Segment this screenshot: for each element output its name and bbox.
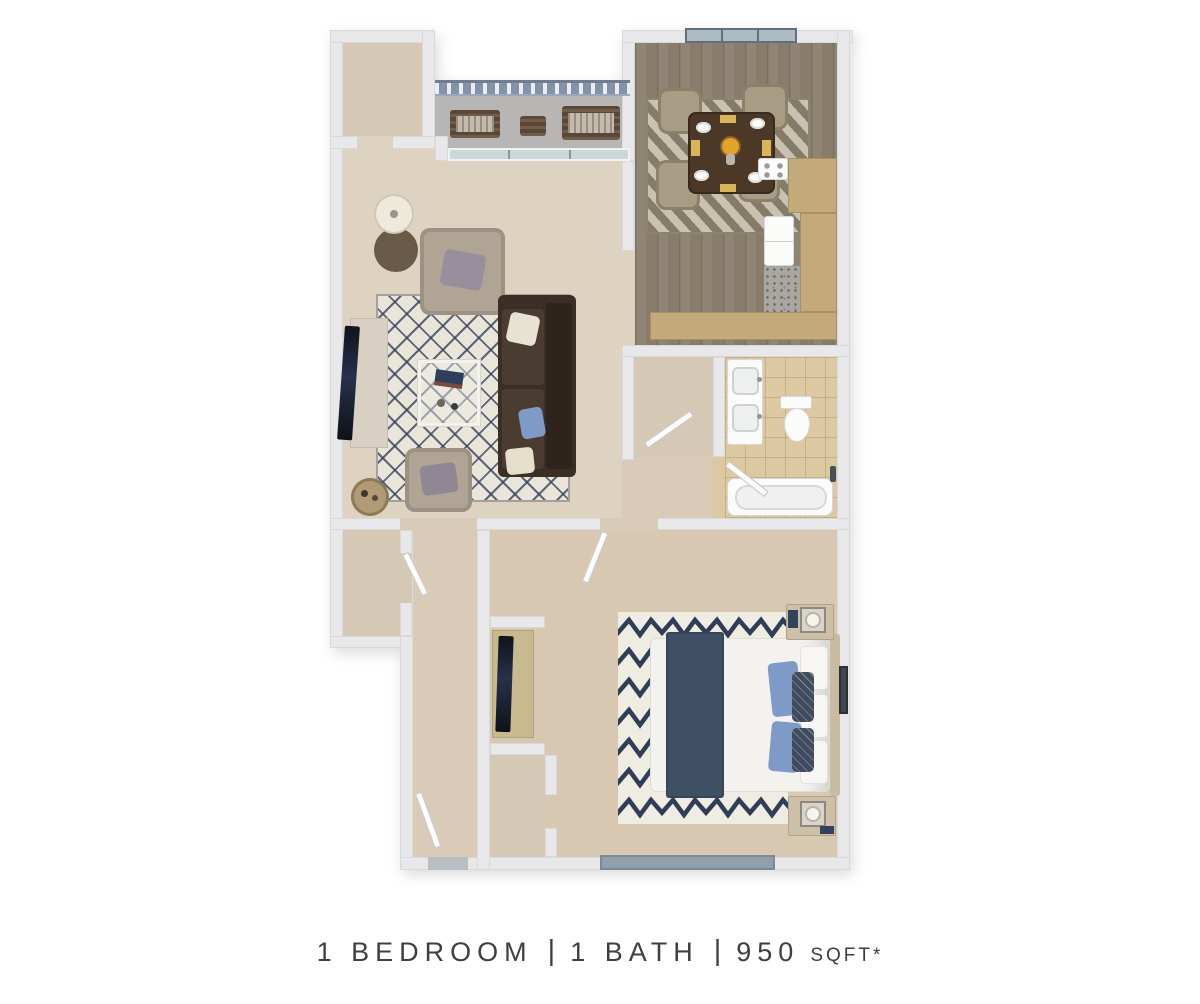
coffee-table-books <box>434 369 464 389</box>
refrigerator <box>764 216 794 266</box>
sink-1 <box>732 367 759 395</box>
range <box>758 158 788 180</box>
faucet <box>757 377 762 382</box>
kitchen-peninsula <box>650 312 837 340</box>
wall-segment <box>545 828 557 857</box>
kitchen-counter-top <box>788 158 837 213</box>
lamp-shade <box>807 808 819 820</box>
side-table <box>374 228 418 272</box>
bathroom-door-opening <box>713 457 725 518</box>
balcony-bench-2 <box>562 106 620 140</box>
plate <box>696 122 711 133</box>
bath-count-label: 1 BATH <box>570 937 699 968</box>
wall-segment <box>622 161 634 251</box>
entry-threshold <box>428 857 468 870</box>
wall-segment <box>477 530 490 870</box>
sofa <box>498 295 576 477</box>
floor-plan-page: 1 BEDROOM | 1 BATH | 950 SQFT* <box>0 0 1200 1004</box>
wall-segment <box>330 30 343 648</box>
nightstand-books <box>788 610 798 628</box>
sofa-back <box>546 303 572 469</box>
walkin-closet-floor <box>342 530 400 636</box>
coffee-table-decor <box>437 399 445 407</box>
sliding-glass-door <box>448 148 630 161</box>
area-value: 950 <box>736 937 799 968</box>
placemat <box>720 184 736 192</box>
vase <box>726 154 735 165</box>
bathtub <box>727 478 833 516</box>
caption: 1 BEDROOM | 1 BATH | 950 SQFT* <box>0 936 1200 969</box>
faucet <box>757 414 762 419</box>
bed-pillow-navy <box>792 728 814 772</box>
bedroom-window <box>600 855 775 870</box>
bench-cushion <box>568 113 614 133</box>
lamp-shade <box>807 614 819 626</box>
placemat <box>691 140 700 156</box>
wall-segment <box>622 345 850 357</box>
accent-pillow <box>439 249 487 292</box>
caption-separator: | <box>548 935 556 968</box>
headboard <box>830 634 840 796</box>
placemat <box>762 140 771 156</box>
storage-closet-floor <box>343 43 422 142</box>
coffee-table-decor <box>451 403 458 410</box>
plate <box>750 118 765 129</box>
wall-segment <box>400 636 413 870</box>
balcony-bench-1 <box>450 110 500 138</box>
caption-separator: | <box>714 935 722 968</box>
sofa-pillow-cream <box>505 447 536 476</box>
flower-centerpiece <box>722 138 739 155</box>
hall-opening <box>400 518 477 530</box>
armchair-1 <box>420 228 505 315</box>
lamp-finial <box>390 210 398 218</box>
wall-segment <box>330 30 435 43</box>
dining-table <box>688 112 775 194</box>
bottle <box>361 490 368 497</box>
hallway-floor <box>622 457 713 518</box>
coffee-table <box>418 360 480 426</box>
dining-window <box>685 28 797 43</box>
wall-segment <box>622 345 634 460</box>
bottle <box>372 495 378 501</box>
balcony-railing <box>435 80 630 96</box>
living-dining-opening <box>622 251 635 345</box>
kitchen-counter-right <box>800 213 837 312</box>
storage-door-opening <box>357 136 393 149</box>
bar-cart <box>351 478 389 516</box>
accent-pillow <box>419 462 459 497</box>
wall-segment <box>545 755 557 795</box>
bedroom-door-opening <box>600 518 658 530</box>
vanity <box>727 359 763 445</box>
bench-cushion <box>456 116 494 132</box>
wall-segment <box>490 616 545 628</box>
floor-plan-render <box>300 28 880 872</box>
area-unit: SQFT* <box>810 945 883 967</box>
placemat <box>720 115 736 123</box>
towel-hook <box>830 466 836 482</box>
armchair-2 <box>405 448 472 512</box>
nightstand-books <box>820 826 834 834</box>
balcony-side-table <box>520 116 546 136</box>
table-lamp-1 <box>800 607 826 633</box>
bedroom-count-label: 1 BEDROOM <box>317 937 533 968</box>
kitchen-floor <box>764 266 800 312</box>
throw-blanket <box>666 632 724 798</box>
sofa-pillow-blue <box>518 406 547 440</box>
sink-2 <box>732 404 759 432</box>
wall-segment <box>435 136 448 161</box>
wall-segment <box>490 743 545 755</box>
floor-lamp <box>376 196 412 232</box>
wall-art <box>839 666 848 714</box>
plate <box>694 170 709 181</box>
table-lamp-2 <box>800 801 826 827</box>
sofa-pillow-cream <box>505 311 541 347</box>
wall-segment <box>422 30 435 148</box>
bedroom-closet-floor <box>490 755 545 857</box>
bathtub-basin <box>735 485 827 510</box>
bed-pillow-navy <box>792 672 814 722</box>
wall-segment <box>713 357 725 457</box>
